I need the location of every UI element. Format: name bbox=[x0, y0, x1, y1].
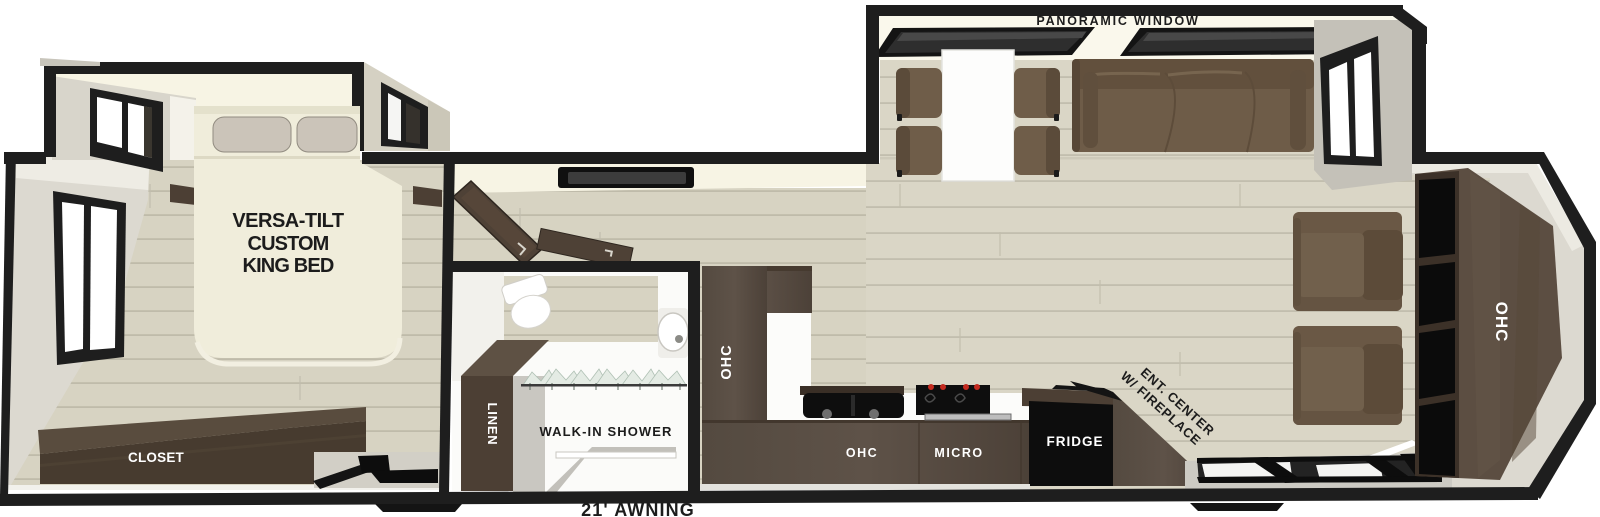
svg-text:OHC: OHC bbox=[1492, 302, 1511, 343]
svg-text:FRIDGE: FRIDGE bbox=[1046, 434, 1103, 449]
svg-text:CUSTOM: CUSTOM bbox=[248, 233, 329, 255]
svg-text:LINEN: LINEN bbox=[485, 403, 500, 446]
svg-text:OHC: OHC bbox=[846, 446, 878, 460]
svg-text:CLOSET: CLOSET bbox=[128, 450, 185, 465]
svg-text:21' AWNING: 21' AWNING bbox=[581, 500, 695, 517]
svg-text:PANORAMIC WINDOW: PANORAMIC WINDOW bbox=[1036, 14, 1199, 28]
svg-text:MICRO: MICRO bbox=[934, 446, 983, 460]
svg-text:WALK-IN SHOWER: WALK-IN SHOWER bbox=[539, 424, 672, 439]
svg-text:KING BED: KING BED bbox=[243, 255, 334, 277]
svg-text:VERSA-TILT: VERSA-TILT bbox=[232, 210, 344, 232]
svg-text:OHC: OHC bbox=[719, 344, 735, 379]
